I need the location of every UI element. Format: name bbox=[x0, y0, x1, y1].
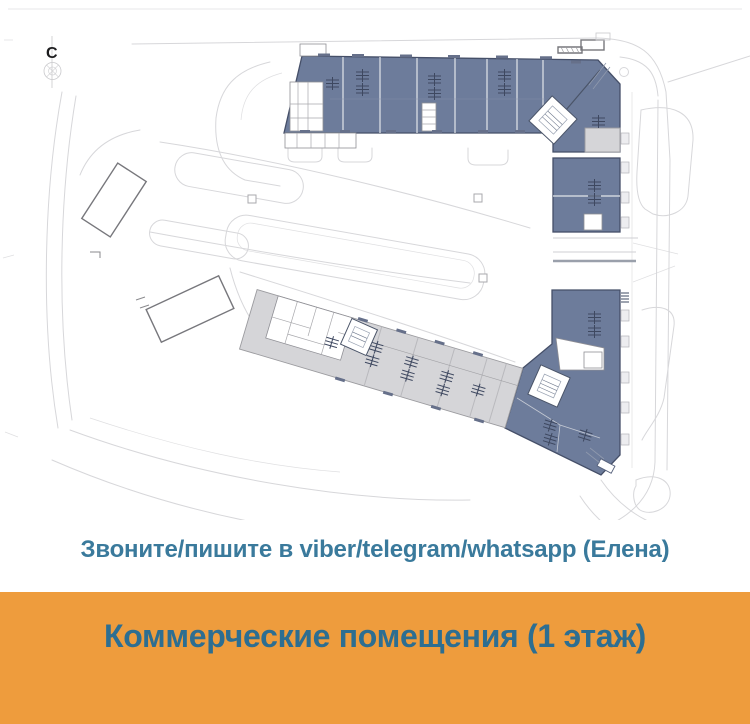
flyer-page: С Звоните/пишите в viber/telegram/whatsa… bbox=[0, 0, 750, 724]
title-banner: Коммерческие помещения (1 этаж) bbox=[0, 592, 750, 724]
site-plan: С bbox=[0, 0, 750, 520]
banner-title: Коммерческие помещения (1 этаж) bbox=[0, 592, 750, 655]
contact-line: Звоните/пишите в viber/telegram/whatsapp… bbox=[0, 536, 750, 564]
compass-north-label: С bbox=[46, 45, 58, 62]
